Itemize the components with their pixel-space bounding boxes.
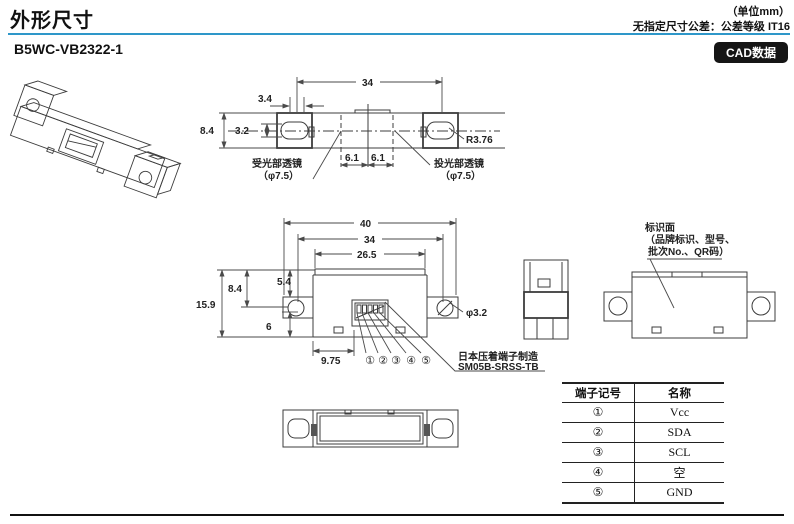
table-row: ④ 空 [562,463,724,483]
terminal-cell: ⑤ [562,483,635,504]
terminal-cell: ④ [562,463,635,483]
footer-rule [10,514,784,516]
bottom-view-geometry [283,410,458,447]
terminal-cell: ① [562,403,635,423]
pin-table-header-row: 端子记号 名称 [562,383,724,403]
marking-face-label-2: （品牌标识、型号、 [645,233,735,246]
isometric-view [4,77,190,201]
table-row: ③ SCL [562,443,724,463]
top-dim-8-4: 8.4 [200,126,214,137]
terminal-cell: ③ [562,443,635,463]
name-cell: 空 [635,463,725,483]
table-row: ① Vcc [562,403,724,423]
receiver-lens-diameter: （φ7.5） [258,169,299,182]
emitter-lens-diameter: （φ7.5） [440,169,481,182]
name-cell: Vcc [635,403,725,423]
pin-callout-3: ③ [391,354,401,367]
name-cell: SCL [635,443,725,463]
receiver-lens-label: 受光部透镜 [252,157,302,170]
name-cell: GND [635,483,725,504]
name-cell: SDA [635,423,725,443]
front-dim-9-75: 9.75 [321,356,341,367]
front-dim-15-9: 15.9 [196,300,216,311]
front-dim-40: 40 [360,219,372,230]
pin-callout-4: ④ [406,354,416,367]
top-dim-3-4: 3.4 [258,94,272,105]
top-dim-radius: R3.76 [466,135,493,146]
pin-callout-5: ⑤ [421,354,431,367]
front-dim-26-5: 26.5 [357,250,377,261]
marking-face-label-1: 标识面 [644,221,675,234]
front-dim-6: 6 [266,322,272,333]
top-dim-34: 34 [362,78,374,89]
emitter-lens-label: 投光部透镜 [434,157,484,170]
front-view-geometry [217,217,545,371]
datasheet-page: 外形尺寸 （单位mm） 无指定尺寸公差：公差等级 IT16 B5WC-VB232… [0,0,794,524]
pin-callout-1: ① [365,354,375,367]
table-row: ② SDA [562,423,724,443]
top-dim-3-2: 3.2 [235,126,249,137]
table-row: ⑤ GND [562,483,724,504]
front-dim-34: 34 [364,235,376,246]
front-dim-8-4: 8.4 [228,284,242,295]
pin-table: 端子记号 名称 ① Vcc ② SDA ③ SCL ④ 空 ⑤ [562,382,724,504]
front-dim-5-4: 5.4 [277,277,291,288]
terminal-cell: ② [562,423,635,443]
back-view-geometry [604,259,775,338]
side-view-geometry [524,260,568,339]
top-dim-6-1-left: 6.1 [345,153,359,164]
top-dim-6-1-right: 6.1 [371,153,385,164]
pin-callout-2: ② [378,354,388,367]
marking-face-label-3: 批次No.、QR码） [648,245,729,258]
connector-model-label: SM05B-SRSS-TB [458,362,539,373]
front-hole-diameter: φ3.2 [466,308,487,319]
pin-table-col-terminal: 端子记号 [562,383,635,403]
pin-table-col-name: 名称 [635,383,725,403]
